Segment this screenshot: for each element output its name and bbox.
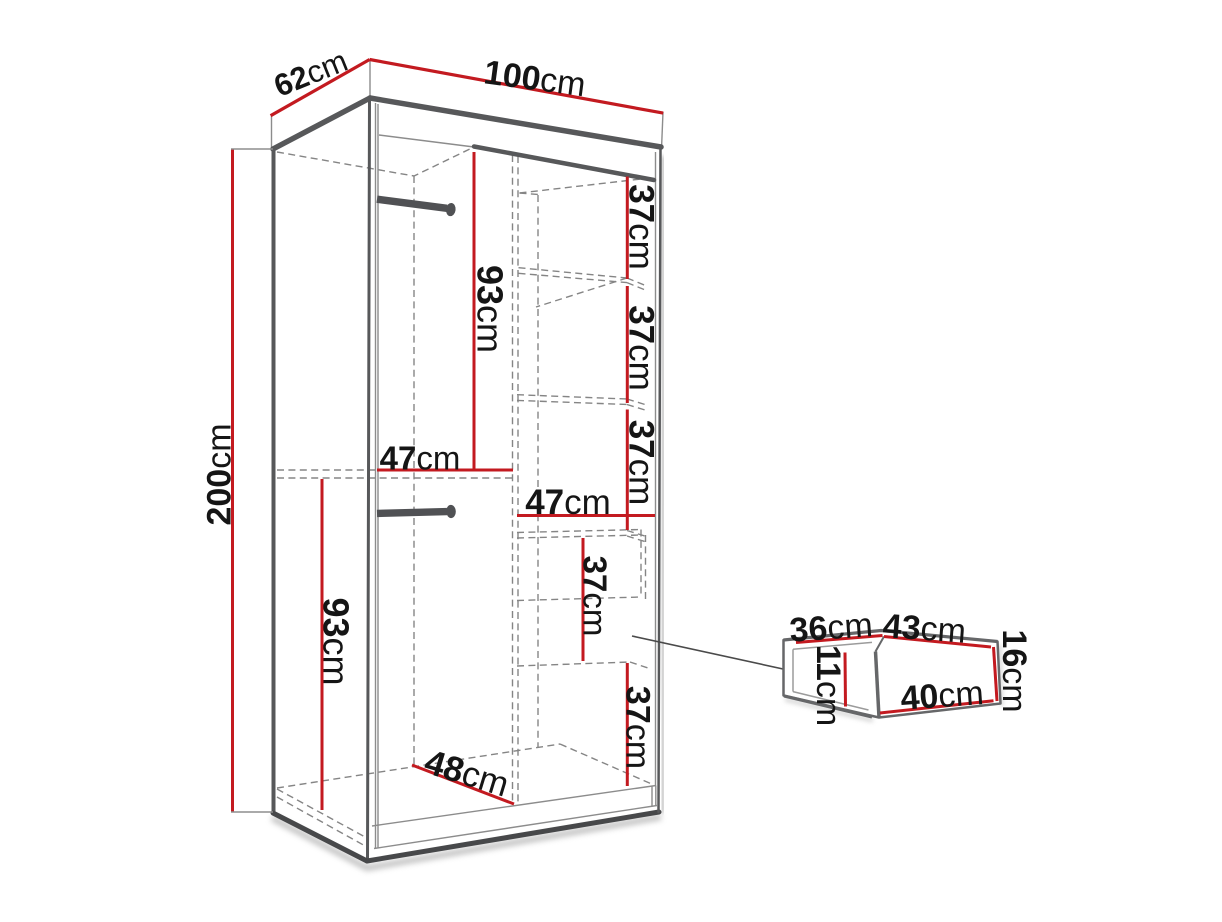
- svg-text:37cm: 37cm: [577, 556, 614, 637]
- svg-text:47cm: 47cm: [380, 439, 461, 476]
- svg-text:37cm: 37cm: [619, 686, 657, 769]
- svg-text:93cm: 93cm: [316, 597, 357, 685]
- svg-text:37cm: 37cm: [622, 184, 661, 270]
- svg-text:40cm: 40cm: [899, 674, 985, 718]
- svg-text:16cm: 16cm: [995, 629, 1033, 712]
- svg-text:37cm: 37cm: [622, 420, 661, 506]
- svg-text:37cm: 37cm: [622, 305, 661, 391]
- svg-text:47cm: 47cm: [525, 483, 611, 522]
- svg-text:43cm: 43cm: [882, 607, 968, 651]
- svg-text:93cm: 93cm: [470, 265, 511, 353]
- svg-text:11cm: 11cm: [809, 645, 847, 726]
- svg-text:36cm: 36cm: [788, 606, 874, 650]
- svg-text:200cm: 200cm: [200, 423, 238, 525]
